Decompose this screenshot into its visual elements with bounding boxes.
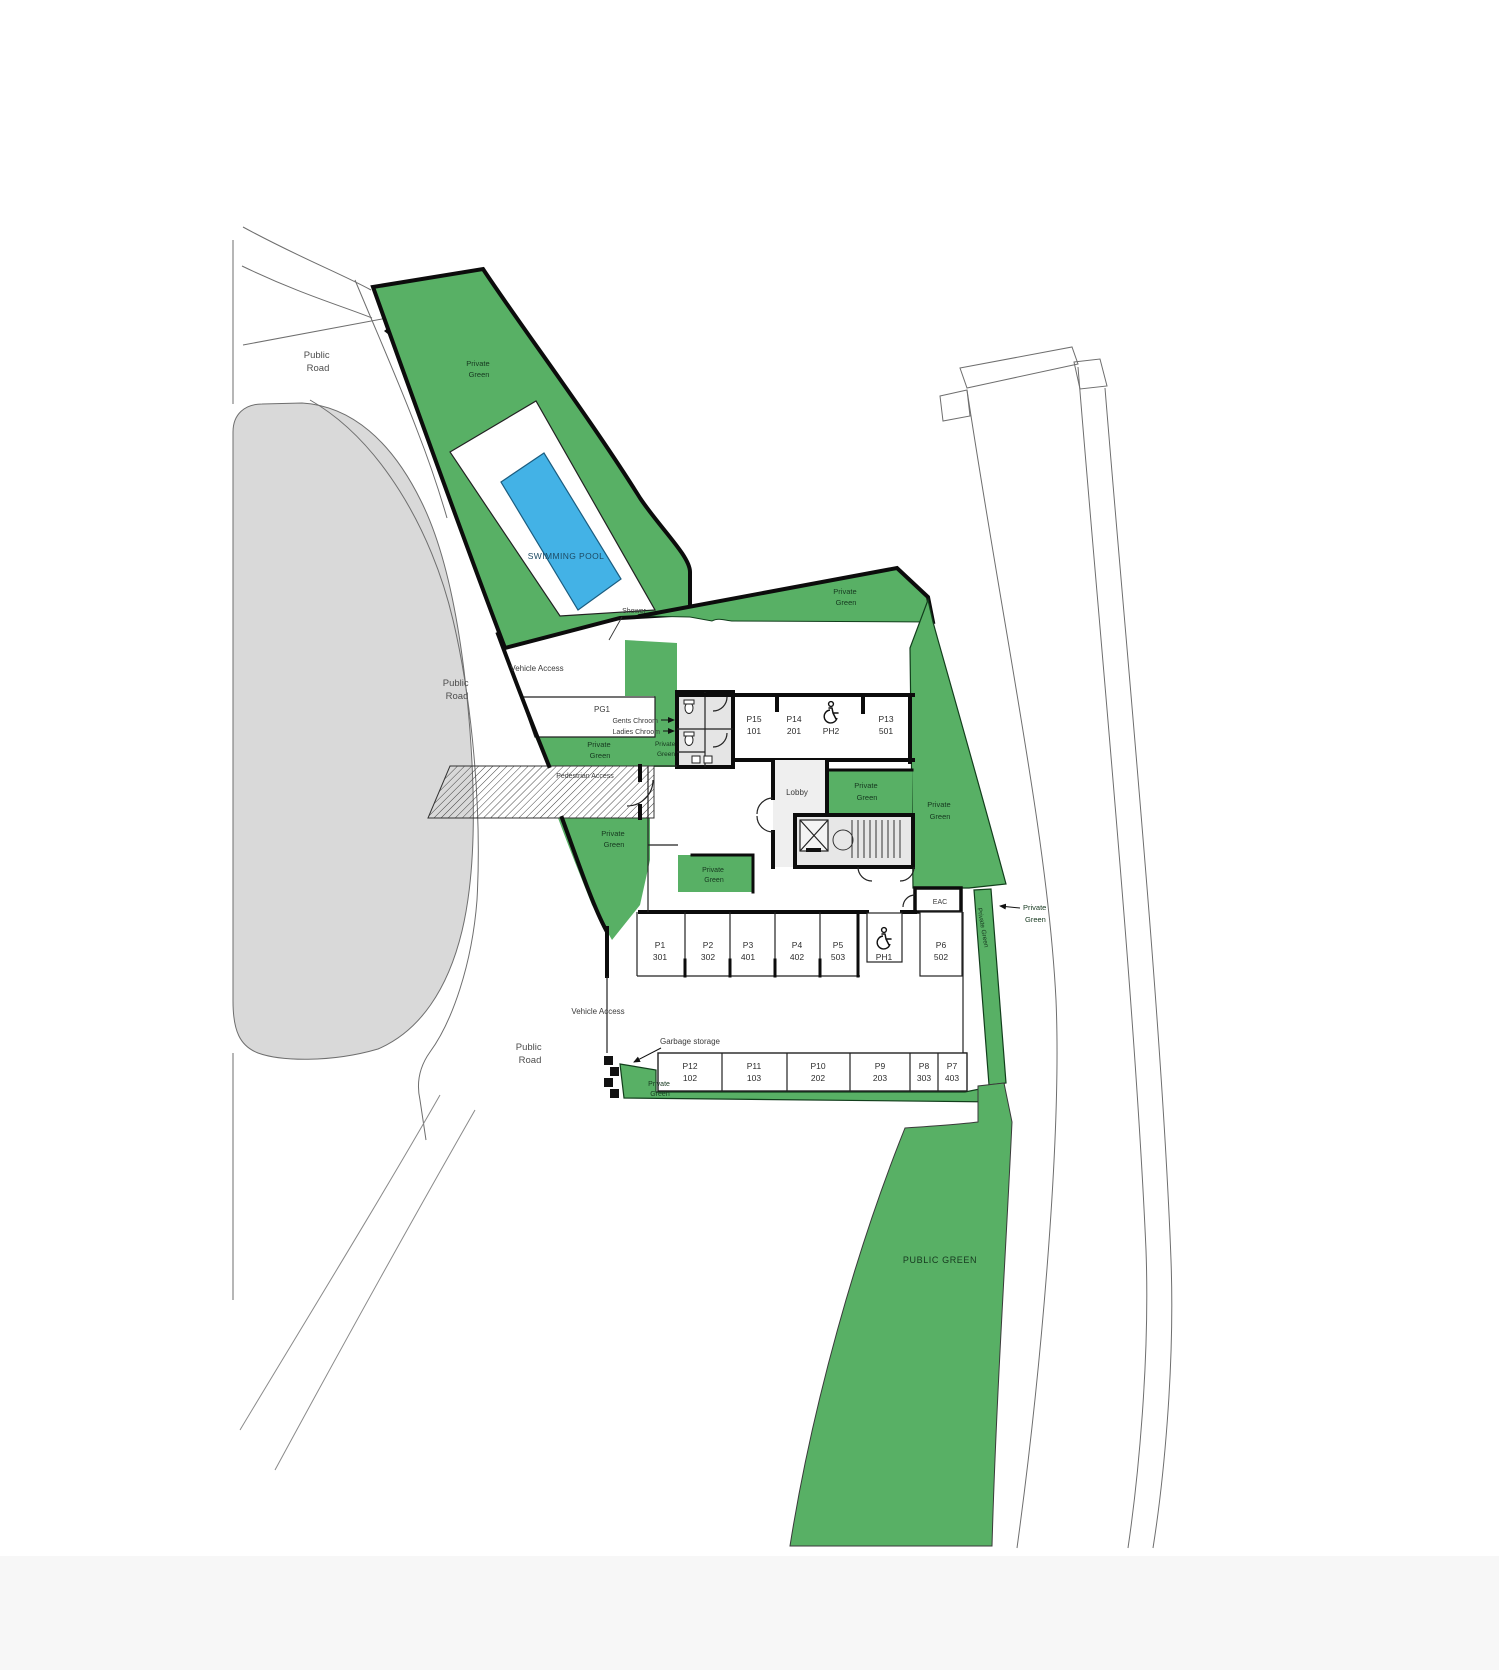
toilet-tank-gents: [684, 700, 694, 704]
stall-id-ph1: PH1: [876, 952, 893, 962]
lobby-label: Lobby: [786, 788, 808, 797]
stall-unit-p1: 301: [653, 952, 667, 962]
stall-id-p14: P14: [786, 714, 801, 724]
garbage-bin-3: [604, 1078, 613, 1087]
stall-unit-p5: 503: [831, 952, 845, 962]
stall-unit-p7: 403: [945, 1073, 959, 1083]
stall-unit-p4: 402: [790, 952, 804, 962]
vehicle-access-label-top: Vehicle Access: [510, 664, 563, 673]
stall-id-p8: P8: [919, 1061, 930, 1071]
stall-unit-p3: 401: [741, 952, 755, 962]
stall-id-ph2: PH2: [823, 726, 840, 736]
elevator-door-sill: [806, 848, 821, 852]
pedestrian-access-label: Pedestrian Access: [556, 773, 614, 780]
stall-id-p3: P3: [743, 940, 754, 950]
stall-id-p1: P1: [655, 940, 666, 950]
stall-id-p12: P12: [682, 1061, 697, 1071]
stall-unit-p2: 302: [701, 952, 715, 962]
stall-unit-p11: 103: [747, 1073, 761, 1083]
bottom-margin-band: [0, 1556, 1499, 1670]
stall-unit-p15: 101: [747, 726, 761, 736]
eac-label: EAC: [933, 899, 947, 906]
lower-row-outline: [658, 1053, 967, 1091]
stall-id-p4: P4: [792, 940, 803, 950]
garbage-storage-label: Garbage storage: [660, 1037, 721, 1046]
sink-2: [704, 756, 712, 763]
vehicle-access-label-bottom: Vehicle Access: [571, 1007, 624, 1016]
page-background: [0, 0, 1499, 1670]
site-plan-drawing: SWIMMING POOL MEP: [0, 0, 1499, 1670]
stall-id-p2: P2: [703, 940, 714, 950]
garbage-bin-4: [610, 1089, 619, 1098]
garbage-bin-2: [610, 1067, 619, 1076]
stall-unit-p12: 102: [683, 1073, 697, 1083]
ladies-changing-room-label: Ladies Chroom: [613, 729, 661, 736]
sink-1: [692, 756, 700, 763]
stall-unit-p14: 201: [787, 726, 801, 736]
stall-id-p6: P6: [936, 940, 947, 950]
stall-id-p5: P5: [833, 940, 844, 950]
stall-id-p10: P10: [810, 1061, 825, 1071]
stall-unit-p8: 303: [917, 1073, 931, 1083]
stall-unit-p13: 501: [879, 726, 893, 736]
garbage-bin-1: [604, 1056, 613, 1065]
stall-unit-p9: 203: [873, 1073, 887, 1083]
stall-unit-p6: 502: [934, 952, 948, 962]
public-green-label: PUBLIC GREEN: [903, 1255, 977, 1265]
shower-label: Shower: [622, 608, 646, 615]
swimming-pool-label: SWIMMING POOL: [528, 551, 605, 561]
pg1-label: PG1: [594, 705, 611, 714]
gents-changing-room-label: Gents Chroom: [612, 718, 658, 725]
stall-id-p7: P7: [947, 1061, 958, 1071]
stall-id-p13: P13: [878, 714, 893, 724]
pedestrian-access-hatch: [428, 766, 654, 818]
toilet-tank-ladies: [684, 732, 694, 736]
site-plan-page: SWIMMING POOL MEP: [0, 0, 1499, 1670]
lobby-east-green-box: [827, 770, 912, 813]
stall-id-p15: P15: [746, 714, 761, 724]
stall-unit-p10: 202: [811, 1073, 825, 1083]
stall-id-p9: P9: [875, 1061, 886, 1071]
stall-id-p11: P11: [747, 1061, 762, 1071]
